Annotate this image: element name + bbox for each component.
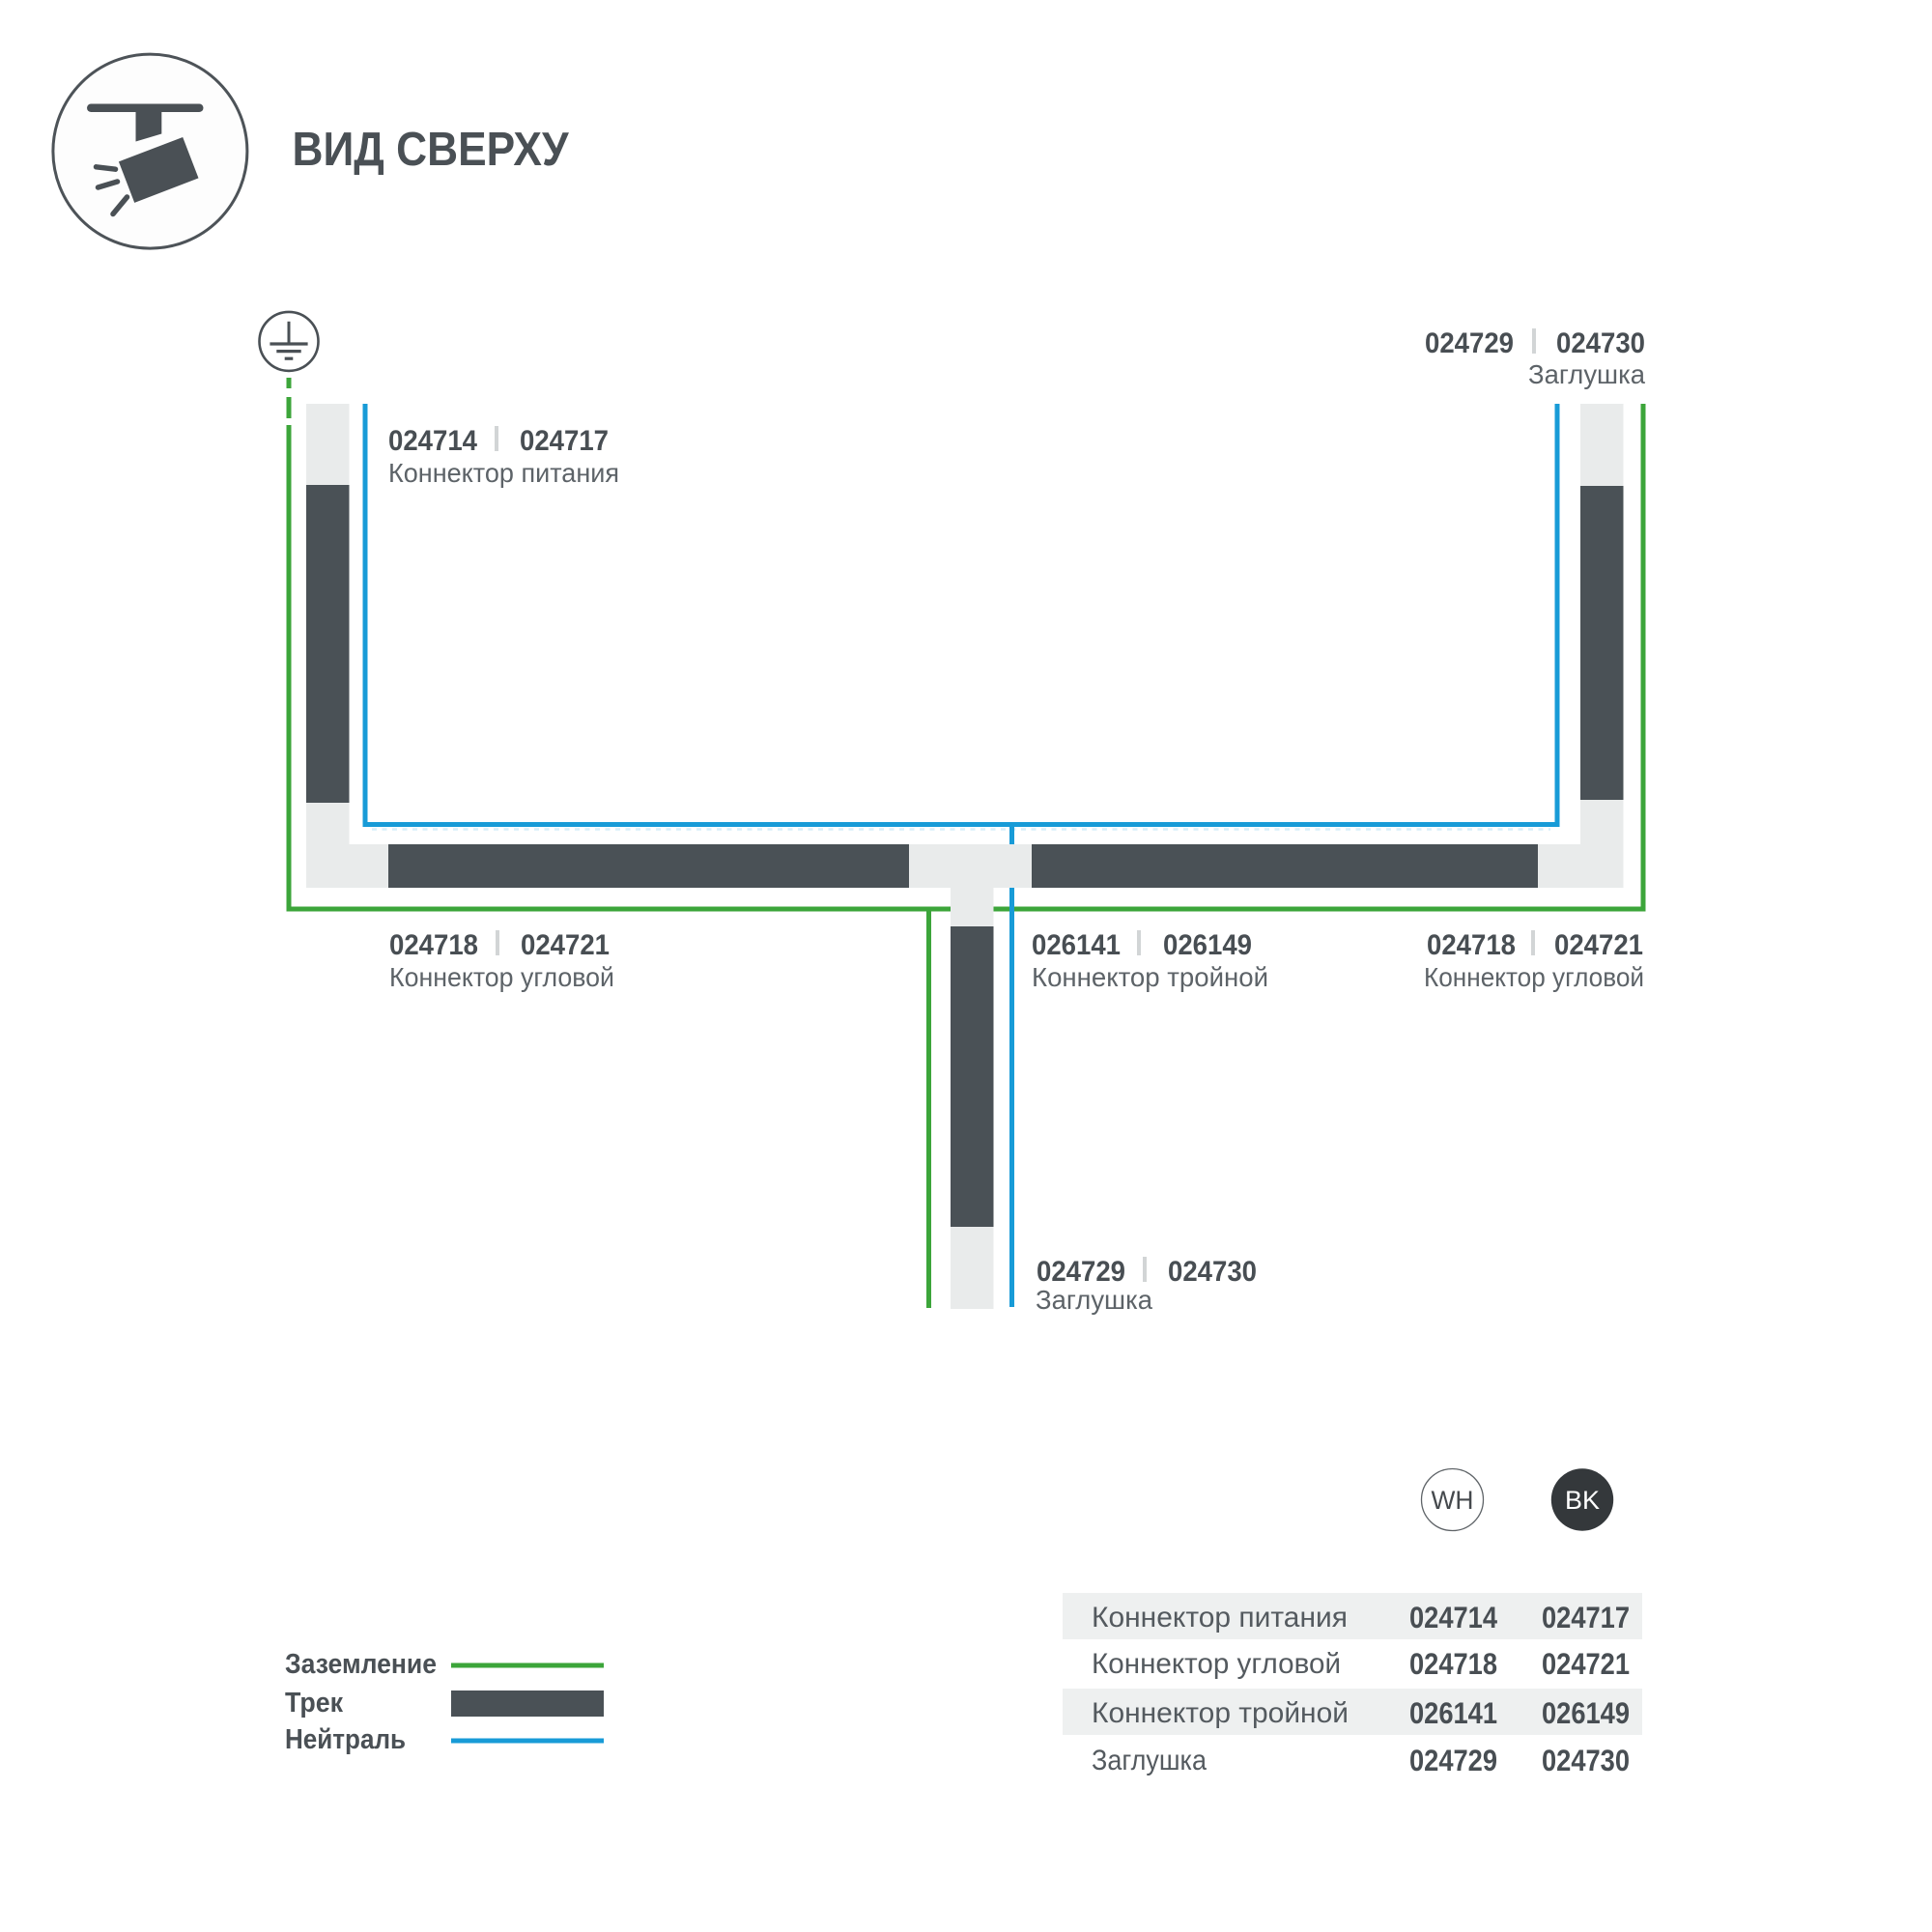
svg-text:WH: WH [1432, 1486, 1474, 1515]
svg-text:024714: 024714 [1409, 1600, 1497, 1634]
svg-text:024718: 024718 [1409, 1646, 1497, 1681]
svg-text:Коннектор питания: Коннектор питания [1092, 1602, 1348, 1634]
svg-text:Заглушка: Заглушка [1528, 359, 1645, 389]
svg-text:024718: 024718 [389, 929, 478, 961]
svg-text:024721: 024721 [521, 929, 610, 961]
svg-text:Коннектор тройной: Коннектор тройной [1092, 1697, 1349, 1729]
svg-text:ВИД СВЕРХУ: ВИД СВЕРХУ [293, 124, 569, 176]
svg-text:Трек: Трек [285, 1688, 343, 1719]
svg-text:026141: 026141 [1032, 929, 1121, 961]
svg-text:024721: 024721 [1542, 1646, 1630, 1681]
svg-text:024730: 024730 [1556, 327, 1645, 359]
svg-text:026141: 026141 [1409, 1695, 1497, 1730]
svg-text:Коннектор тройной: Коннектор тройной [1032, 962, 1268, 992]
svg-text:024729: 024729 [1409, 1743, 1497, 1777]
svg-text:Заглушка: Заглушка [1092, 1745, 1207, 1776]
svg-text:024730: 024730 [1542, 1743, 1630, 1777]
svg-text:024721: 024721 [1554, 929, 1643, 961]
svg-text:026149: 026149 [1542, 1695, 1630, 1730]
svg-text:024729: 024729 [1425, 327, 1514, 359]
svg-text:026149: 026149 [1163, 929, 1252, 961]
svg-text:Коннектор угловой: Коннектор угловой [1092, 1648, 1341, 1680]
svg-text:024714: 024714 [388, 425, 477, 457]
svg-text:Заглушка: Заглушка [1036, 1285, 1152, 1315]
svg-text:024729: 024729 [1037, 1256, 1125, 1288]
svg-text:Коннектор угловой: Коннектор угловой [389, 962, 614, 992]
svg-text:Заземление: Заземление [285, 1649, 437, 1680]
svg-text:Нейтраль: Нейтраль [285, 1724, 406, 1755]
svg-text:BK: BK [1565, 1486, 1600, 1515]
svg-text:024718: 024718 [1427, 929, 1516, 961]
svg-text:024730: 024730 [1168, 1256, 1257, 1288]
svg-text:024717: 024717 [520, 425, 609, 457]
svg-text:Коннектор угловой: Коннектор угловой [1424, 962, 1644, 992]
svg-text:024717: 024717 [1542, 1600, 1630, 1634]
svg-text:Коннектор питания: Коннектор питания [388, 458, 619, 488]
